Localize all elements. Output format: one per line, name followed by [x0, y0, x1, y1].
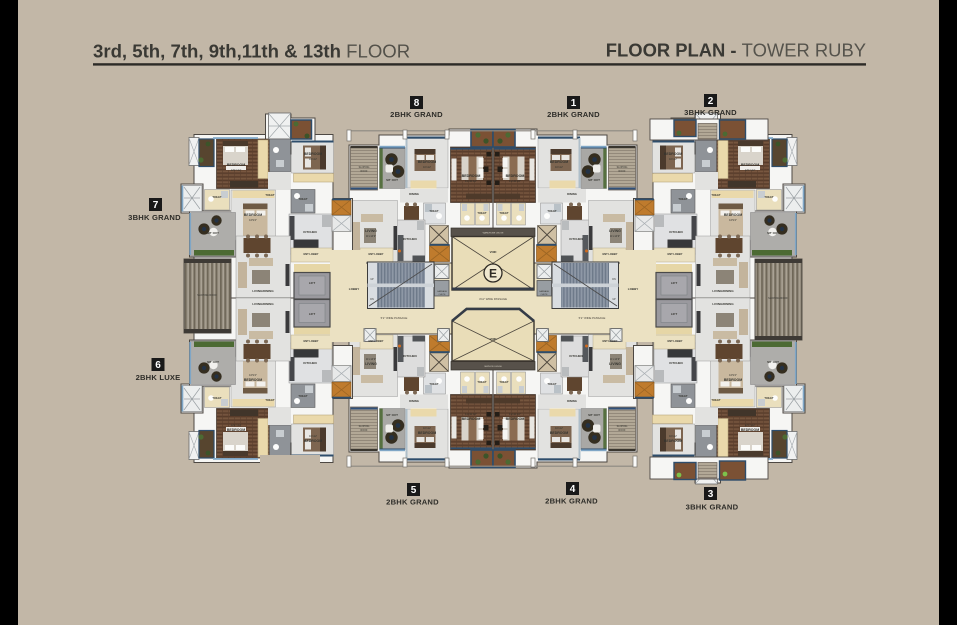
svg-text:SLOPING ROOF: SLOPING ROOF [197, 293, 217, 297]
svg-text:LIVING: LIVING [609, 229, 621, 233]
svg-text:TOILET: TOILET [499, 211, 509, 215]
svg-text:11'x11'10": 11'x11'10" [465, 412, 477, 416]
svg-text:TOILET: TOILET [711, 193, 721, 197]
svg-text:2BHK LUXE: 2BHK LUXE [136, 373, 181, 382]
svg-text:LIVING/DINING: LIVING/DINING [252, 289, 274, 293]
svg-text:TOILET: TOILET [764, 195, 774, 199]
svg-text:10'x12': 10'x12' [555, 426, 564, 430]
svg-text:TOILET: TOILET [711, 398, 721, 402]
svg-text:5: 5 [411, 485, 417, 496]
svg-text:VOID: VOID [490, 337, 497, 341]
svg-text:DINING: DINING [567, 192, 577, 196]
svg-text:BEDROOM: BEDROOM [506, 417, 525, 421]
svg-text:BEDROOM: BEDROOM [741, 163, 759, 167]
svg-text:TOILET: TOILET [298, 394, 308, 398]
svg-text:SIT OUT: SIT OUT [386, 178, 398, 182]
svg-text:10'x12': 10'x12' [423, 426, 432, 430]
svg-text:SLOPING: SLOPING [617, 166, 628, 169]
svg-text:ENT LOBBY: ENT LOBBY [304, 252, 319, 256]
svg-text:DN: DN [612, 278, 616, 281]
svg-text:TOILET: TOILET [429, 209, 439, 213]
svg-text:4'11" WIDE PASSAGE: 4'11" WIDE PASSAGE [479, 297, 507, 301]
svg-text:BEDROOM: BEDROOM [724, 378, 742, 382]
svg-text:LIFT: LIFT [671, 281, 677, 285]
svg-text:11'x14'9": 11'x14'9" [610, 234, 620, 238]
svg-text:2BHK GRAND: 2BHK GRAND [386, 498, 439, 507]
svg-text:2BHK GRAND: 2BHK GRAND [547, 110, 600, 119]
svg-text:ENT LOBBY: ENT LOBBY [603, 339, 618, 343]
svg-text:LOBBY: LOBBY [628, 287, 639, 291]
svg-text:TOILET: TOILET [298, 197, 308, 201]
svg-text:LIVING: LIVING [609, 362, 621, 366]
svg-text:ENT LOBBY: ENT LOBBY [304, 339, 319, 343]
svg-text:KITCHEN: KITCHEN [403, 354, 416, 358]
svg-text:3BHK GRAND: 3BHK GRAND [128, 213, 181, 222]
svg-text:4: 4 [570, 484, 576, 495]
svg-text:SIT OUT: SIT OUT [588, 413, 600, 417]
svg-text:DINING: DINING [409, 399, 419, 403]
svg-text:TOILET: TOILET [499, 380, 509, 384]
svg-text:BEDROOM: BEDROOM [418, 160, 436, 164]
svg-text:KITCHEN: KITCHEN [303, 361, 316, 365]
svg-text:KITCHEN: KITCHEN [669, 230, 682, 234]
svg-text:KITCHEN: KITCHEN [569, 237, 582, 241]
svg-text:SERVICE LEDGE: SERVICE LEDGE [484, 366, 502, 368]
svg-text:2BHK GRAND: 2BHK GRAND [545, 497, 598, 506]
svg-text:E: E [489, 267, 497, 281]
svg-text:12'1"x12': 12'1"x12' [745, 168, 756, 172]
svg-text:ENT LOBBY: ENT LOBBY [369, 252, 384, 256]
svg-text:BEDROOM: BEDROOM [664, 152, 682, 156]
svg-text:2BHK GRAND: 2BHK GRAND [390, 110, 443, 119]
svg-text:11'x11'10": 11'x11'10" [465, 179, 477, 183]
svg-text:10'x12': 10'x12' [669, 157, 678, 161]
svg-text:10'x12': 10'x12' [309, 157, 318, 161]
svg-text:8: 8 [414, 98, 420, 109]
svg-text:TOILET: TOILET [212, 396, 222, 400]
svg-text:SIT OUT: SIT OUT [207, 360, 219, 364]
svg-text:UP: UP [612, 298, 616, 301]
svg-text:CHUTE: CHUTE [541, 294, 549, 296]
svg-text:BEDROOM: BEDROOM [244, 378, 262, 382]
svg-text:GARBAGE: GARBAGE [437, 290, 448, 293]
svg-text:BEDROOM: BEDROOM [462, 174, 481, 178]
svg-text:10'x12': 10'x12' [669, 434, 678, 438]
svg-text:KITCHEN: KITCHEN [403, 237, 416, 241]
svg-text:11'x14'9": 11'x14'9" [366, 357, 376, 361]
svg-text:TOILET: TOILET [477, 211, 487, 215]
svg-text:SIT OUT: SIT OUT [588, 178, 600, 182]
svg-text:LIVING/DINING: LIVING/DINING [252, 302, 274, 306]
svg-text:LIFT: LIFT [309, 281, 315, 285]
svg-text:WARDROBE LEDGE: WARDROBE LEDGE [483, 232, 504, 235]
svg-text:TOILET: TOILET [547, 209, 557, 213]
svg-text:10'x12': 10'x12' [555, 165, 564, 169]
svg-text:LOBBY: LOBBY [349, 287, 360, 291]
svg-text:3BHK GRAND: 3BHK GRAND [686, 503, 739, 512]
svg-text:6: 6 [155, 360, 161, 371]
svg-text:TOILET: TOILET [265, 193, 275, 197]
svg-text:ROOF: ROOF [361, 429, 368, 432]
svg-text:BEDROOM: BEDROOM [244, 213, 262, 217]
svg-text:TOILET: TOILET [678, 197, 688, 201]
svg-text:5'2" WIDE PASSAGE: 5'2" WIDE PASSAGE [579, 316, 606, 320]
svg-text:SLOPING ROOF: SLOPING ROOF [768, 296, 788, 300]
svg-text:3rd, 5th, 7th, 9th,11th & 13th: 3rd, 5th, 7th, 9th,11th & 13th FLOOR [93, 41, 410, 62]
svg-text:KITCHEN: KITCHEN [669, 361, 682, 365]
svg-text:LIVING: LIVING [365, 229, 377, 233]
svg-text:5'2" WIDE PASSAGE: 5'2" WIDE PASSAGE [381, 316, 408, 320]
svg-text:LIFT: LIFT [309, 312, 315, 316]
svg-text:11'x14'9": 11'x14'9" [366, 234, 376, 238]
svg-text:ENT LOBBY: ENT LOBBY [603, 252, 618, 256]
svg-text:ENT LOBBY: ENT LOBBY [668, 252, 683, 256]
svg-text:KITCHEN: KITCHEN [569, 354, 582, 358]
svg-text:TOILET: TOILET [429, 382, 439, 386]
svg-text:DINING: DINING [409, 192, 419, 196]
svg-text:TOILET: TOILET [477, 380, 487, 384]
svg-text:12'1"x12': 12'1"x12' [231, 423, 242, 427]
svg-text:10'9'4": 10'9'4" [729, 373, 737, 377]
svg-text:TOILET: TOILET [678, 394, 688, 398]
svg-text:SIT OUT: SIT OUT [386, 413, 398, 417]
svg-text:ENT LOBBY: ENT LOBBY [668, 339, 683, 343]
svg-text:BEDROOM: BEDROOM [664, 439, 682, 443]
svg-text:10'9'4": 10'9'4" [249, 218, 257, 222]
svg-text:FLOOR PLAN - TOWER RUBY: FLOOR PLAN - TOWER RUBY [606, 40, 866, 61]
svg-text:BEDROOM: BEDROOM [550, 160, 568, 164]
svg-text:UP: UP [370, 278, 374, 281]
svg-text:GARBAGE: GARBAGE [539, 290, 550, 293]
svg-text:10'9'4": 10'9'4" [729, 218, 737, 222]
svg-text:TOILET: TOILET [265, 398, 275, 402]
svg-text:12'1"x12': 12'1"x12' [745, 423, 756, 427]
svg-text:LIVING/DINING: LIVING/DINING [712, 289, 734, 293]
svg-text:3BHK GRAND: 3BHK GRAND [684, 108, 737, 117]
svg-text:LIVING/DINING: LIVING/DINING [712, 302, 734, 306]
svg-text:BEDROOM: BEDROOM [304, 439, 322, 443]
svg-text:VOID: VOID [490, 250, 497, 254]
svg-text:BEDROOM: BEDROOM [462, 417, 481, 421]
svg-text:10'9'4": 10'9'4" [249, 373, 257, 377]
svg-text:LIVING: LIVING [365, 362, 377, 366]
svg-text:SIT OUT: SIT OUT [207, 231, 219, 235]
svg-text:SIT OUT: SIT OUT [767, 231, 779, 235]
svg-text:BEDROOM: BEDROOM [506, 174, 525, 178]
svg-text:12'1"x12': 12'1"x12' [231, 168, 242, 172]
svg-text:ROOF: ROOF [619, 429, 626, 432]
svg-text:BEDROOM: BEDROOM [741, 428, 759, 432]
svg-text:CHUTE: CHUTE [439, 294, 447, 296]
svg-text:TOILET: TOILET [547, 382, 557, 386]
svg-text:11'x14'9": 11'x14'9" [610, 357, 620, 361]
svg-text:3: 3 [708, 489, 714, 500]
svg-text:BEDROOM: BEDROOM [227, 428, 245, 432]
svg-text:SLOPING: SLOPING [359, 425, 370, 428]
svg-text:ROOF: ROOF [619, 170, 626, 173]
svg-text:TOILET: TOILET [764, 396, 774, 400]
svg-text:BEDROOM: BEDROOM [550, 431, 568, 435]
svg-text:11'x11'10": 11'x11'10" [509, 179, 521, 183]
svg-text:2: 2 [708, 96, 714, 107]
svg-text:SIT OUT: SIT OUT [767, 360, 779, 364]
svg-text:BEDROOM: BEDROOM [227, 163, 245, 167]
svg-text:BEDROOM: BEDROOM [304, 152, 322, 156]
svg-text:DN: DN [370, 298, 374, 301]
svg-text:10'x12': 10'x12' [423, 165, 432, 169]
svg-text:TOILET: TOILET [212, 195, 222, 199]
svg-text:SLOPING: SLOPING [617, 425, 628, 428]
svg-text:LIFT: LIFT [671, 312, 677, 316]
svg-text:10'x12': 10'x12' [309, 434, 318, 438]
svg-text:KITCHEN: KITCHEN [303, 230, 316, 234]
svg-text:BEDROOM: BEDROOM [724, 213, 742, 217]
svg-text:1: 1 [571, 98, 577, 109]
svg-text:BEDROOM: BEDROOM [418, 431, 436, 435]
svg-text:ENT LOBBY: ENT LOBBY [369, 339, 384, 343]
svg-text:SLOPING: SLOPING [359, 166, 370, 169]
svg-text:7: 7 [153, 200, 159, 211]
svg-text:DINING: DINING [567, 399, 577, 403]
svg-text:ROOF: ROOF [361, 170, 368, 173]
svg-text:11'x11'10": 11'x11'10" [509, 412, 521, 416]
